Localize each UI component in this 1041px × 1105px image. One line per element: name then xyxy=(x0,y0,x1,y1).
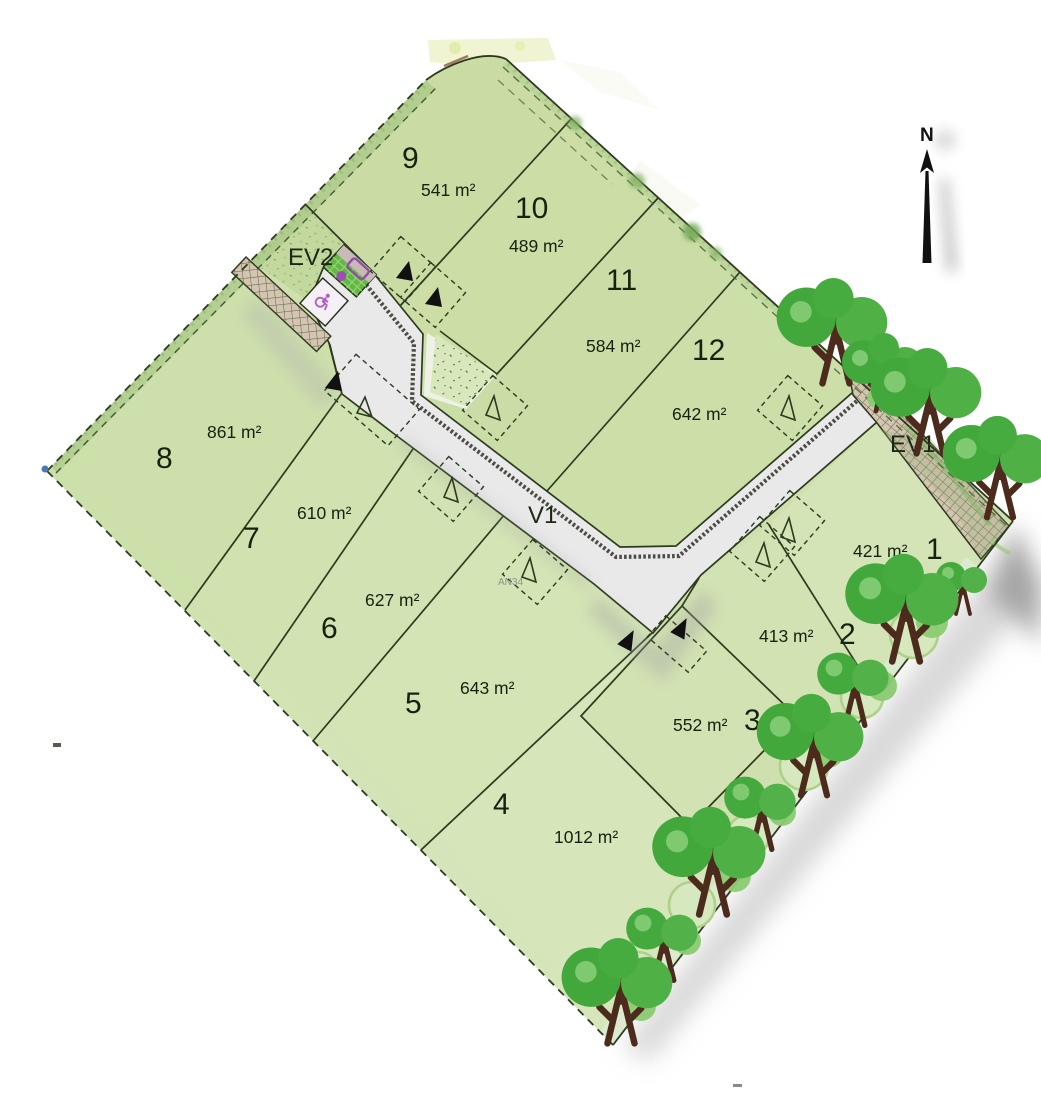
svg-text:9: 9 xyxy=(402,142,419,175)
svg-text:642 m²: 642 m² xyxy=(672,404,727,424)
svg-text:610 m²: 610 m² xyxy=(297,503,352,523)
svg-text:552 m²: 552 m² xyxy=(673,715,728,735)
svg-text:12: 12 xyxy=(692,334,725,367)
svg-text:861 m²: 861 m² xyxy=(207,422,262,442)
svg-text:4: 4 xyxy=(493,788,510,821)
svg-text:1: 1 xyxy=(926,533,943,566)
svg-text:2: 2 xyxy=(839,618,856,651)
svg-text:584 m²: 584 m² xyxy=(586,336,641,356)
svg-text:1012 m²: 1012 m² xyxy=(554,827,618,847)
svg-text:AN34: AN34 xyxy=(498,577,523,588)
svg-text:489 m²: 489 m² xyxy=(509,236,564,256)
svg-text:N: N xyxy=(920,125,934,146)
svg-text:413 m²: 413 m² xyxy=(759,626,814,646)
svg-text:8: 8 xyxy=(156,442,173,475)
svg-text:11: 11 xyxy=(606,264,637,297)
svg-text:7: 7 xyxy=(243,522,260,555)
svg-text:10: 10 xyxy=(515,192,548,225)
svg-text:627 m²: 627 m² xyxy=(365,590,420,610)
svg-text:5: 5 xyxy=(405,687,422,720)
svg-text:V1: V1 xyxy=(528,502,557,529)
svg-text:6: 6 xyxy=(321,612,338,645)
svg-text:643 m²: 643 m² xyxy=(460,678,515,698)
svg-text:541 m²: 541 m² xyxy=(421,180,476,200)
svg-text:EV2: EV2 xyxy=(288,244,333,271)
